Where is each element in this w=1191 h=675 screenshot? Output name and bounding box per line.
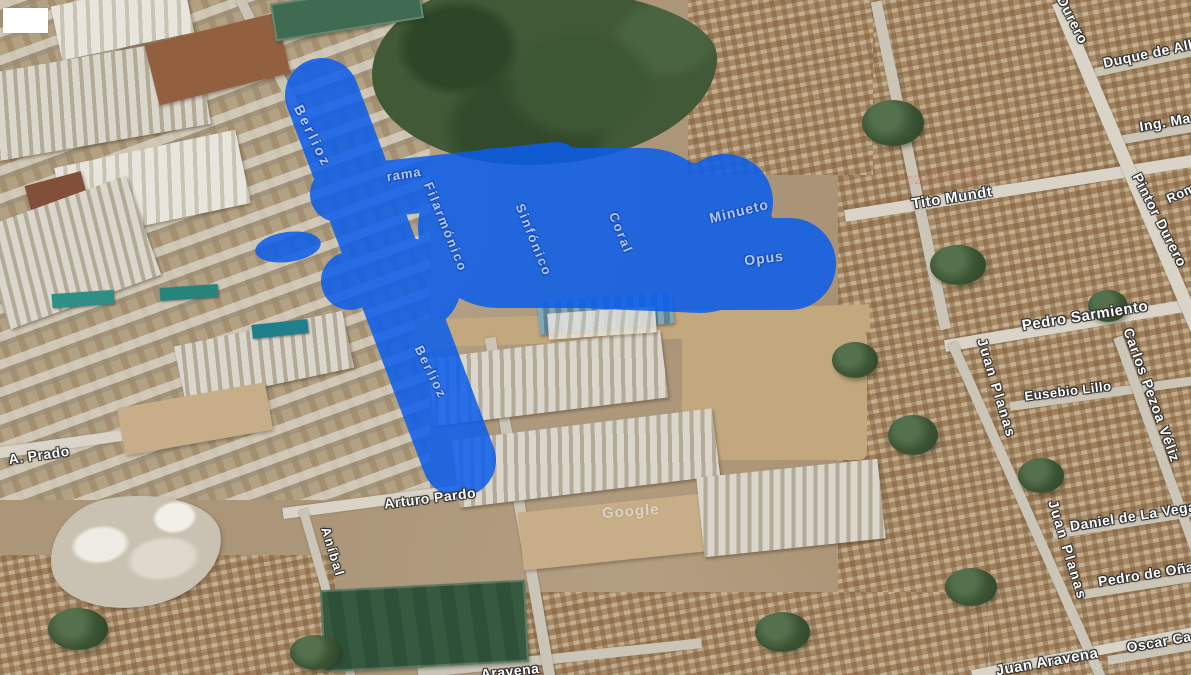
street-label: Sinfónico [513,201,556,278]
street-label: Arturo Pardo [383,484,477,511]
street-label: Juan Planas [1045,498,1091,602]
street-label: Tito Mundt [910,183,993,213]
street-labels-layer: BerliozBerliozramaFilarmónicoSinfónicoCo… [0,0,1191,675]
street-label: A. Prado [7,443,70,467]
street-label: Juan Aravena [994,645,1099,675]
blank-white-panel [3,8,48,33]
street-label: Minueto [708,196,771,226]
street-label: Berlioz [412,343,451,401]
street-label: Coral [606,210,636,256]
street-label: rama [386,164,423,184]
street-label: Daniel de La Vega [1069,498,1191,534]
street-label: Ing. Ma [1138,110,1191,135]
street-label: Berlioz [291,102,335,170]
street-label: Juan Planas [974,336,1020,440]
satellite-map[interactable]: ©2023 Google ©2023 Google BerliozBerlioz… [0,0,1191,675]
street-label: Aravena [480,660,540,675]
street-label: Aníbal [318,525,347,579]
street-label: Duque de Alb [1102,35,1191,71]
street-label: Durero [1054,0,1092,47]
street-label: Filarmónico [421,180,471,274]
street-label: Pedro de Oña [1097,559,1191,590]
street-label: Opus [743,248,784,269]
street-label: Eusebio Lillo [1024,378,1113,404]
street-label: Oscar Cas [1125,627,1191,656]
street-label: Rom [1164,180,1191,206]
street-label: Carlos Pezoa Véliz [1120,326,1184,465]
